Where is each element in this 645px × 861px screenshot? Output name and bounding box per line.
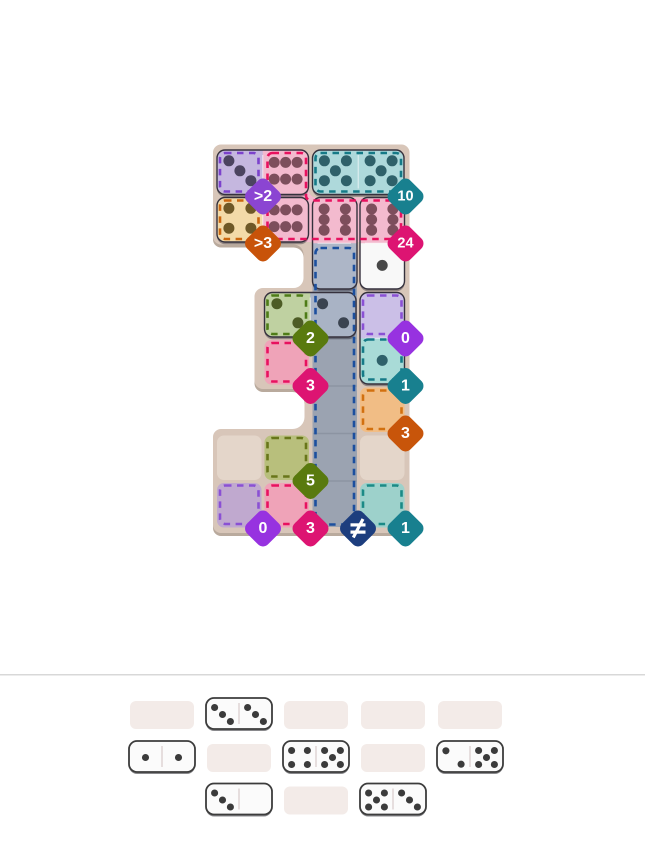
svg-text:3: 3 [401,425,410,442]
svg-text:1: 1 [401,378,410,395]
svg-text:0: 0 [401,330,410,347]
svg-text:3: 3 [306,378,315,395]
svg-text:2: 2 [306,330,315,347]
svg-text:5: 5 [306,473,315,490]
svg-text:>3: >3 [254,235,272,252]
svg-text:24: 24 [397,236,413,252]
svg-text:3: 3 [306,520,315,537]
svg-text:0: 0 [259,520,268,537]
svg-text:>2: >2 [254,188,272,205]
svg-text:1: 1 [401,520,410,537]
svg-text:10: 10 [397,189,413,205]
